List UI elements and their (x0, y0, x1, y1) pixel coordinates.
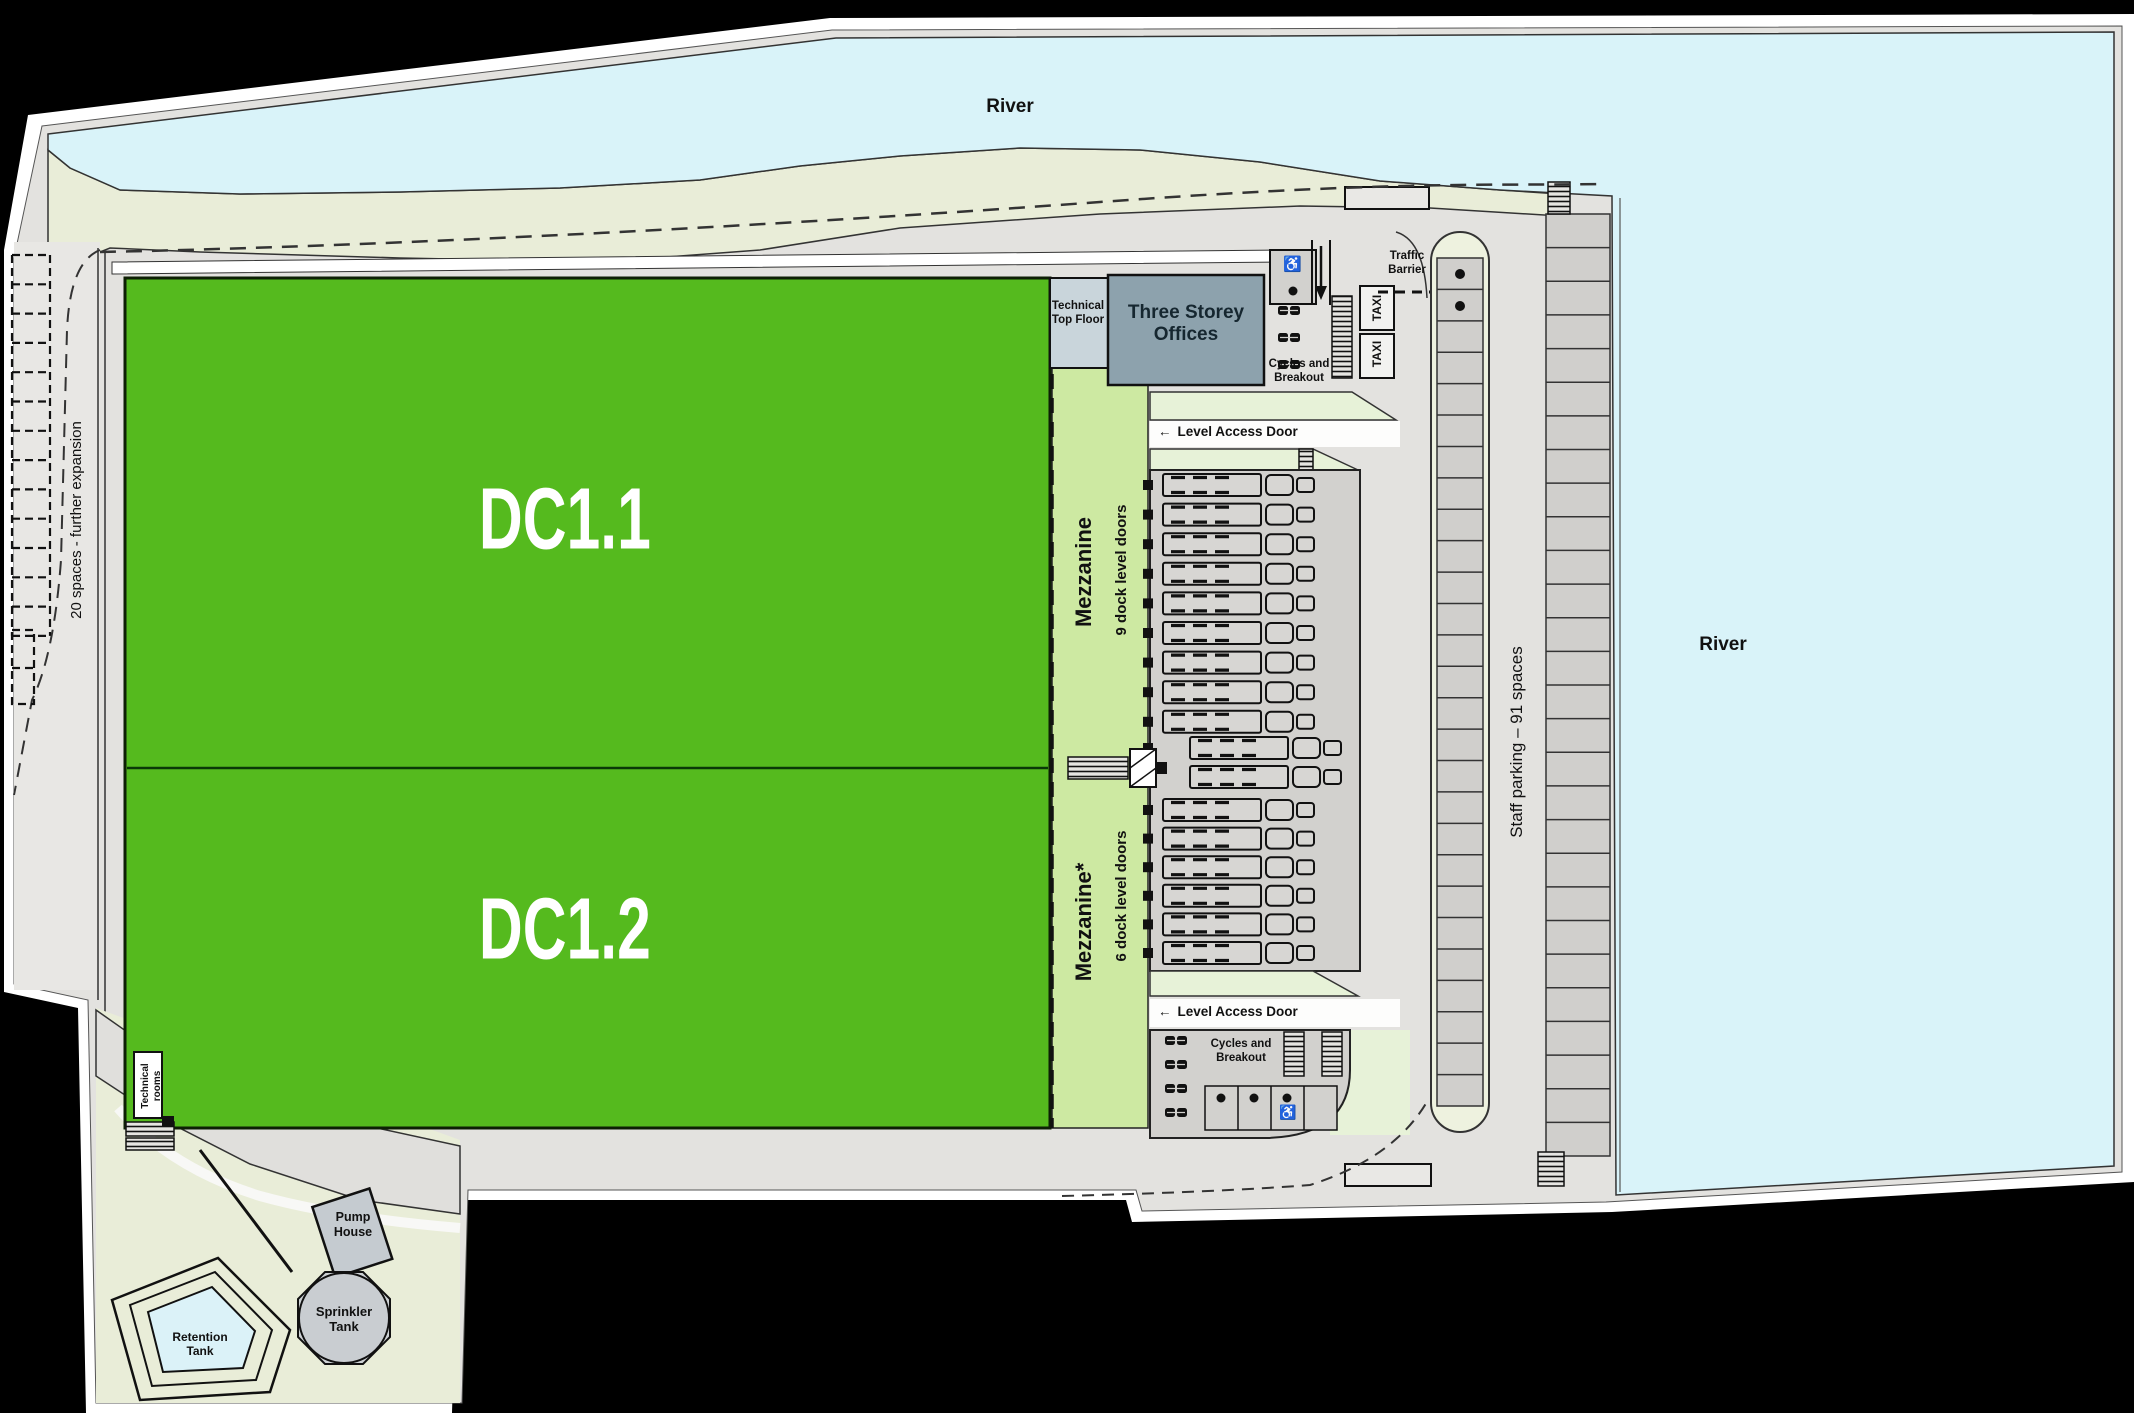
level-access-door-bottom: ←Level Access Door (1158, 1004, 1298, 1020)
cycles-bottom-label: Cycles and Breakout (1206, 1038, 1276, 1065)
dock-doors-bottom-label: 6 dock level doors (1113, 806, 1131, 986)
offices-label: Three Storey Offices (1125, 302, 1247, 347)
sprinkler-tank-label: Sprinkler Tank (304, 1304, 384, 1335)
river-label-top: River (955, 96, 1065, 118)
gate-bottom (1345, 1164, 1431, 1186)
taxi-label-2: TAXI (1370, 329, 1384, 379)
mezzanine-top-label: Mezzanine (1071, 492, 1093, 652)
retention-tank-label: Retention Tank (160, 1330, 240, 1358)
level-access-door-top: ←Level Access Door (1158, 424, 1298, 440)
taxi-label-1: TAXI (1370, 283, 1384, 333)
staff-parking-label: Staff parking – 91 spaces (1507, 612, 1527, 872)
door-nub (162, 1116, 174, 1126)
access-canopy-top-a (1150, 392, 1396, 420)
mezzanine-bottom-label: Mezzanine* (1071, 842, 1093, 1002)
warehouse-building (125, 278, 1050, 1128)
stairs-icon (1068, 757, 1128, 779)
plant-icon (126, 1138, 174, 1150)
site-plan: River River 20 spaces - further expansio… (0, 0, 2134, 1413)
bike-rack-icon (1548, 182, 1570, 214)
left-arrow-icon: ← (1158, 424, 1172, 439)
cycles-top-label: Cycles and Breakout (1256, 358, 1342, 385)
truck-icons (1163, 474, 1341, 964)
wheelchair-icon: ♿ (1279, 1104, 1296, 1121)
wheelchair-icon: ♿ (1283, 256, 1302, 274)
traffic-barrier-label: Traffic Barrier (1376, 250, 1438, 277)
technical-rooms-label: Technical rooms (140, 1051, 156, 1121)
dc11-label: DC1.1 (300, 475, 830, 562)
door-nub (1157, 762, 1167, 774)
stair-lobby (1130, 749, 1156, 787)
dock-doors-top-label: 9 dock level doors (1113, 480, 1131, 660)
bike-rack-icon (1284, 1032, 1304, 1076)
dc12-label: DC1.2 (300, 885, 830, 972)
left-arrow-icon: ← (1158, 1004, 1172, 1019)
river-label-right: River (1668, 634, 1778, 656)
technical-top-floor-label: Technical Top Floor (1046, 300, 1110, 327)
pump-house-label: Pump House (320, 1210, 386, 1240)
island-spaces (1437, 258, 1483, 1106)
bike-rack-icon (1538, 1152, 1564, 1186)
expansion-parking-label: 20 spaces - further expansion (68, 320, 88, 720)
site-plan-drawing (0, 0, 2134, 1413)
stair-icon (1299, 449, 1313, 470)
gate-top (1345, 187, 1429, 209)
bike-rack-icon (1322, 1032, 1342, 1076)
